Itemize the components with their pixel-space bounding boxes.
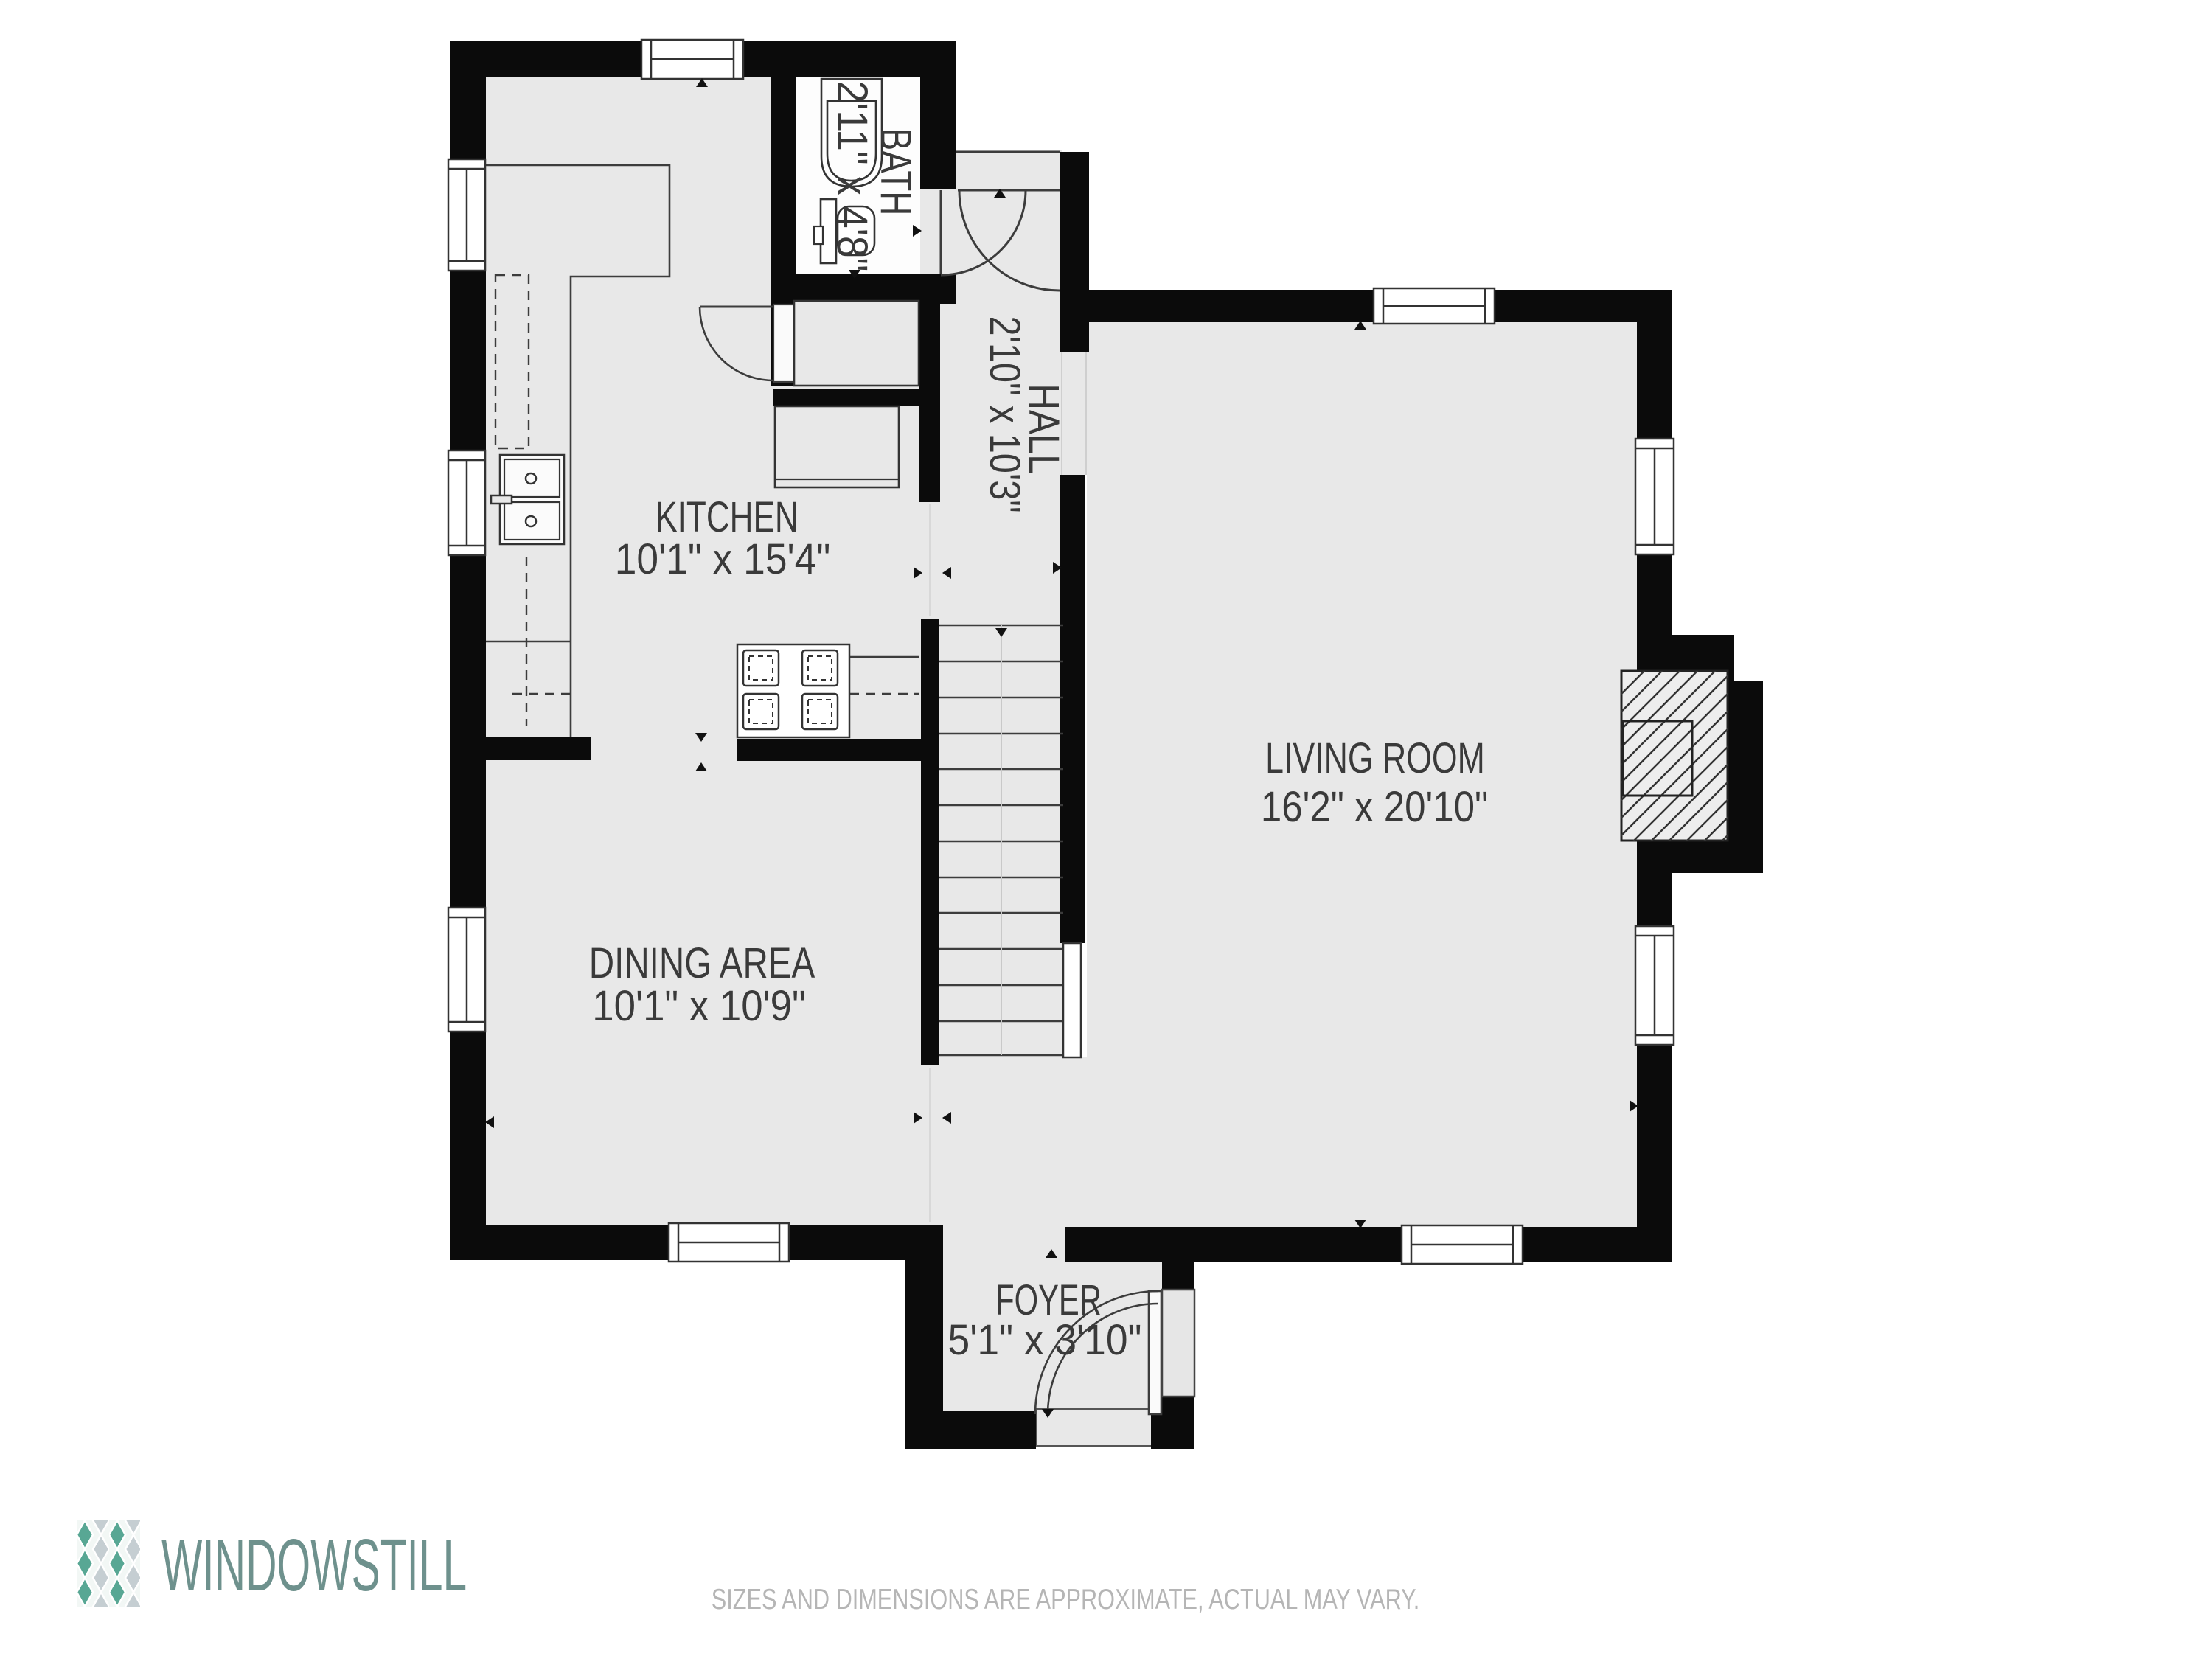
svg-text:SIZES AND DIMENSIONS ARE APPRO: SIZES AND DIMENSIONS ARE APPROXIMATE, AC… <box>712 1584 1419 1615</box>
svg-text:2'10" x 10'3": 2'10" x 10'3" <box>981 316 1028 512</box>
svg-text:LIVING ROOM: LIVING ROOM <box>1265 734 1485 782</box>
svg-text:DINING AREA: DINING AREA <box>589 940 815 988</box>
svg-text:10'1" x 15'4": 10'1" x 15'4" <box>615 535 831 583</box>
svg-text:10'1" x 10'9": 10'1" x 10'9" <box>592 982 805 1030</box>
svg-text:BATH: BATH <box>872 128 919 216</box>
svg-text:16'2" x 20'10": 16'2" x 20'10" <box>1261 783 1488 831</box>
svg-text:2'11" x 4'8": 2'11" x 4'8" <box>829 81 877 272</box>
svg-text:5'1" x 3'10": 5'1" x 3'10" <box>948 1316 1142 1364</box>
svg-text:WINDOWSTILL: WINDOWSTILL <box>161 1525 467 1607</box>
svg-text:KITCHEN: KITCHEN <box>655 493 798 540</box>
